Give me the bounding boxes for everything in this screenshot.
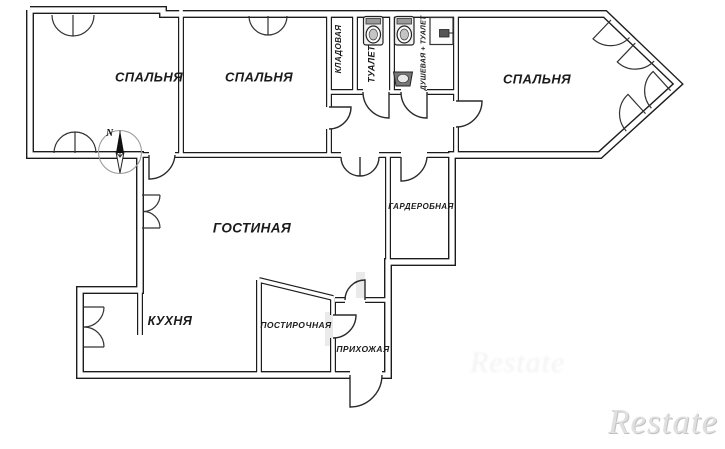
room-label-bedroom-3: СПАЛЬНЯ <box>503 73 571 86</box>
room-label-toilet: ТУАЛЕТ <box>368 45 377 83</box>
room-label-laundry: ПОСТИРОЧНАЯ <box>260 321 331 330</box>
watermark: Restate <box>608 404 718 439</box>
room-label-hallway: ПРИХОЖАЯ <box>336 345 389 354</box>
shower-icon <box>430 18 454 45</box>
floor-plan-drawing: N <box>0 0 725 449</box>
room-label-bedroom-2: СПАЛЬНЯ <box>225 71 293 84</box>
toilet-icon <box>395 17 415 46</box>
room-label-bedroom-1: СПАЛЬНЯ <box>115 71 183 84</box>
room-label-shower-toilet: ДУШЕВАЯ + ТУАЛЕТ <box>421 16 428 91</box>
watermark-faint: Restate <box>470 348 565 378</box>
floor-plan: N СПАЛЬНЯ СПАЛЬНЯ СПАЛЬНЯ КЛАДОВАЯ ТУАЛЕ… <box>0 0 725 449</box>
room-label-kitchen: КУХНЯ <box>148 315 193 328</box>
toilet-icon <box>364 17 384 46</box>
compass-n-label: N <box>105 128 114 139</box>
room-label-wardrobe: ГАРДЕРОБНАЯ <box>388 203 453 211</box>
room-label-storage: КЛАДОВАЯ <box>335 25 343 74</box>
door-entrance <box>350 375 382 407</box>
room-label-living-room: ГОСТИНАЯ <box>213 221 291 235</box>
sink-icon <box>394 72 413 86</box>
